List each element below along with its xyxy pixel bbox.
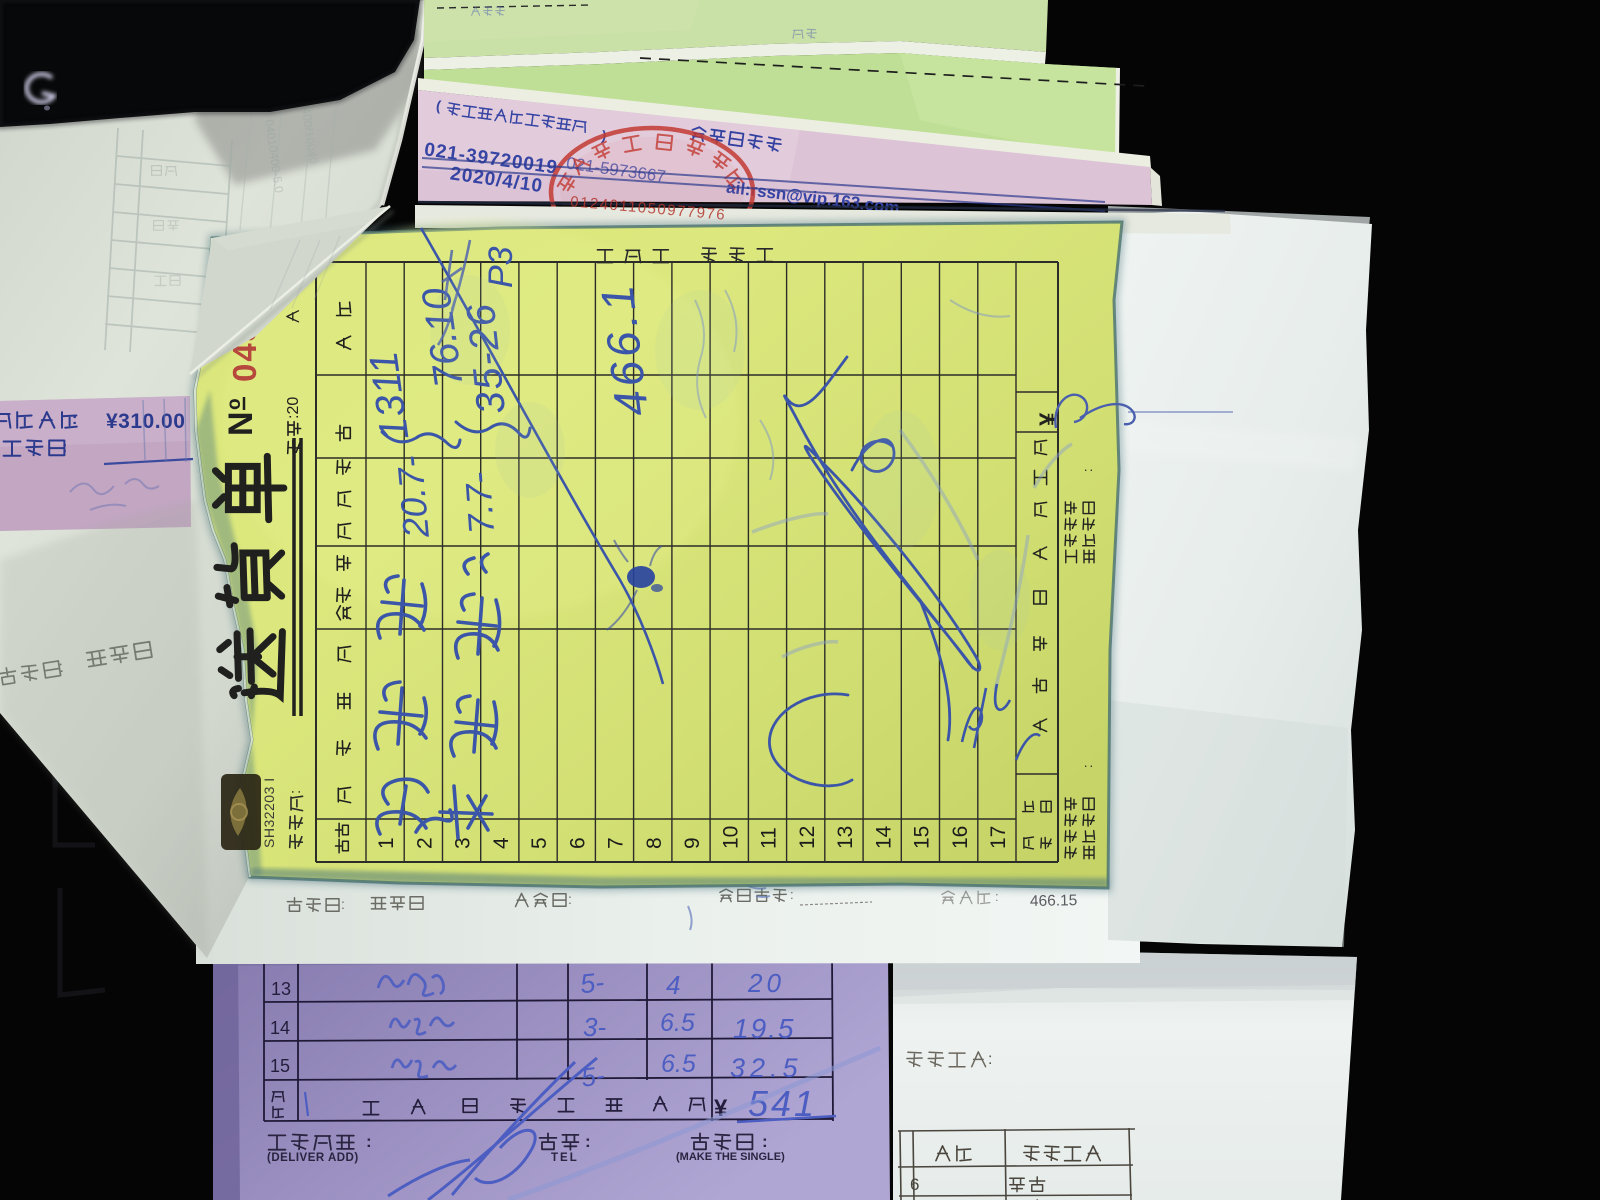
svg-text:16: 16 (949, 826, 972, 849)
svg-text::: : (1080, 468, 1095, 472)
svg-text:4: 4 (490, 837, 513, 849)
svg-text:14: 14 (270, 1018, 290, 1038)
svg-text:¥: ¥ (1035, 412, 1062, 426)
svg-text::: : (341, 896, 345, 912)
svg-text::20: :20 (285, 397, 302, 419)
svg-text:2: 2 (414, 837, 437, 849)
svg-text::: : (995, 889, 999, 904)
svg-text:13: 13 (271, 979, 291, 999)
svg-text:6: 6 (566, 837, 589, 849)
svg-text::: : (366, 1132, 372, 1151)
svg-text:4: 4 (666, 970, 680, 1000)
svg-text:15: 15 (911, 826, 934, 849)
svg-text:11: 11 (758, 827, 781, 849)
svg-text:1: 1 (375, 837, 398, 849)
svg-text::: : (1080, 764, 1095, 768)
svg-text:5-: 5- (579, 967, 606, 999)
svg-text:7: 7 (605, 837, 628, 849)
svg-text:12: 12 (796, 826, 819, 849)
svg-text:15: 15 (270, 1056, 290, 1076)
svg-text:466.15: 466.15 (1030, 892, 1078, 910)
svg-text::: : (568, 891, 572, 907)
svg-text::: : (72, 411, 77, 428)
svg-text:14: 14 (872, 825, 895, 849)
svg-text:TEL: TEL (551, 1152, 579, 1164)
svg-text:13: 13 (834, 826, 857, 849)
svg-text::: : (585, 1132, 591, 1151)
svg-text:6.5: 6.5 (661, 1050, 696, 1078)
svg-text:7.7-: 7.7- (457, 471, 502, 536)
svg-text:6.5: 6.5 (660, 1009, 695, 1037)
svg-text:8: 8 (643, 837, 666, 849)
svg-text:10: 10 (719, 826, 742, 849)
svg-text:9: 9 (681, 837, 704, 849)
svg-text:SH32203 I: SH32203 I (261, 777, 277, 848)
svg-text:17: 17 (987, 826, 1010, 849)
svg-text::: : (762, 1132, 768, 1151)
svg-text:5-: 5- (579, 1060, 606, 1093)
svg-text:20: 20 (747, 968, 785, 998)
svg-text:N: N (222, 411, 260, 436)
svg-text::: : (790, 887, 794, 902)
svg-text::: : (287, 790, 304, 794)
svg-text:19.5: 19.5 (733, 1013, 796, 1044)
svg-text:20.7-: 20.7- (389, 454, 437, 540)
svg-text:6: 6 (910, 1175, 919, 1194)
svg-text:32.5: 32.5 (730, 1053, 803, 1083)
svg-text:(DELIVER ADD): (DELIVER ADD) (267, 1152, 359, 1164)
svg-text::: : (62, 439, 67, 456)
svg-text:(MAKE THE SINGLE): (MAKE THE SINGLE) (676, 1151, 785, 1163)
svg-text:3: 3 (452, 837, 475, 849)
svg-text::: : (988, 1051, 992, 1068)
svg-text:¥310.00: ¥310.00 (106, 410, 185, 433)
svg-text:5: 5 (528, 837, 551, 849)
svg-text:3-: 3- (583, 1012, 606, 1042)
svg-text:o: o (224, 398, 245, 410)
